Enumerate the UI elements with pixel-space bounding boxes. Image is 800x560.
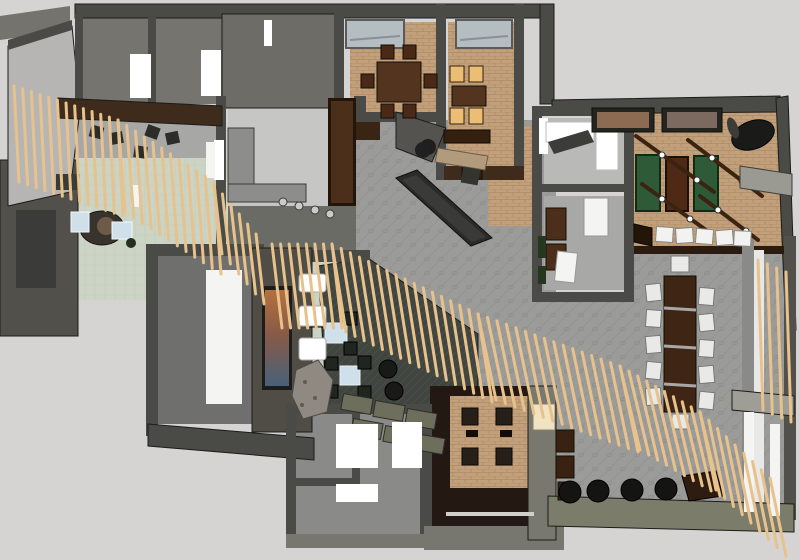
restroom-bottom-band xyxy=(286,534,434,548)
dining1-chair xyxy=(381,45,394,59)
alcove-chair xyxy=(496,408,512,425)
communal-chair xyxy=(698,391,715,409)
bar-stool xyxy=(326,210,334,218)
office-wall-bottom xyxy=(532,292,634,302)
white-bench xyxy=(299,338,326,360)
ottoman xyxy=(385,382,403,400)
beam-light xyxy=(715,207,721,213)
game-bar-stool xyxy=(695,228,713,244)
blank-room xyxy=(222,14,338,108)
lounge-chair xyxy=(325,357,338,370)
dining2-amber-chair xyxy=(469,108,483,124)
dining2-amber-chair xyxy=(450,108,464,124)
dining2-sideboard xyxy=(444,130,490,143)
game-bar-end xyxy=(634,224,652,246)
skylight-1 xyxy=(346,20,404,48)
shelf-box xyxy=(556,430,574,452)
dining2-amber-chair xyxy=(469,66,483,82)
closet-wall-left xyxy=(75,14,83,106)
shelf-box xyxy=(556,456,574,478)
beam-light xyxy=(659,152,665,158)
stone-speckle xyxy=(313,396,317,400)
reception-plant xyxy=(126,238,136,248)
pantry-wall-right xyxy=(624,106,634,302)
table-metal-band xyxy=(664,308,696,310)
white-post xyxy=(206,142,215,178)
dining2-table xyxy=(452,86,486,106)
communal-chair xyxy=(645,361,662,379)
slat-anchor-block xyxy=(56,174,80,190)
pool-table-green xyxy=(636,155,660,211)
dark-chair xyxy=(461,167,481,186)
reception-table xyxy=(112,222,132,239)
game-bar-stool xyxy=(675,227,693,243)
communal-chair xyxy=(645,283,662,301)
office-white-chair xyxy=(554,251,577,283)
service-bar-top xyxy=(331,101,353,203)
ottoman xyxy=(655,478,677,500)
office-plant xyxy=(538,236,546,258)
alcove-table xyxy=(466,430,478,437)
alcove-chair xyxy=(496,448,512,465)
table-metal-band xyxy=(664,346,696,348)
restroom-wall-left xyxy=(286,404,296,546)
round-table xyxy=(415,142,431,158)
closet-door-1 xyxy=(130,54,151,98)
stone-speckle xyxy=(303,380,307,384)
lounge-chair xyxy=(344,342,357,355)
floorplan-render xyxy=(0,0,800,560)
picture-canvas xyxy=(667,112,717,128)
beam-light xyxy=(694,177,700,183)
lounge-chair xyxy=(358,356,371,369)
restroom-fixture xyxy=(336,484,378,502)
office-desk xyxy=(546,208,566,240)
picture-canvas xyxy=(597,112,649,128)
restroom-fixture xyxy=(392,422,422,468)
beam-light xyxy=(659,196,665,202)
corridor-wall-left xyxy=(146,244,158,436)
ottoman xyxy=(559,481,581,503)
table-metal-band xyxy=(664,384,696,386)
ottoman xyxy=(621,479,643,501)
alcove-chair xyxy=(462,408,478,425)
ottoman xyxy=(379,360,397,378)
communal-chair xyxy=(698,365,714,383)
office-plant xyxy=(538,266,546,284)
dining1-chair xyxy=(381,104,394,118)
skylight-2 xyxy=(456,20,512,48)
beam-light xyxy=(709,155,715,161)
floorplan-canvas xyxy=(0,0,800,560)
hall-wood-piece xyxy=(356,122,380,140)
bar-stool xyxy=(279,198,287,206)
alcove-chair xyxy=(462,448,478,465)
pantry-office-divider xyxy=(532,184,634,192)
dining2-wall-right xyxy=(514,4,524,178)
corridor-wall-top xyxy=(146,244,264,256)
communal-chair xyxy=(698,313,715,331)
dining1-chair xyxy=(361,74,374,88)
dining1-chair xyxy=(403,104,416,118)
dining1-table xyxy=(377,62,421,102)
alcove-table xyxy=(500,430,512,437)
dining1-chair xyxy=(403,45,416,59)
service-counter-bottom xyxy=(228,184,306,202)
communal-chair xyxy=(645,335,661,353)
beam-light xyxy=(687,216,693,222)
bar-stool xyxy=(295,202,303,210)
communal-chair xyxy=(698,287,714,305)
game-bar-stool xyxy=(655,226,673,242)
communal-chair-head xyxy=(671,256,689,272)
reception-table xyxy=(71,212,89,232)
blank-room-door xyxy=(264,20,272,46)
communal-table xyxy=(664,276,696,412)
artwork-canvas xyxy=(265,290,289,386)
service-counter-left xyxy=(228,128,254,186)
stone-speckle xyxy=(300,403,304,407)
topwing-right-edge xyxy=(540,4,554,104)
stair-light-strip xyxy=(446,512,534,516)
vestibule-door xyxy=(16,210,56,288)
corridor-lightwell xyxy=(206,270,242,404)
closet-door-2 xyxy=(201,50,221,96)
service-door xyxy=(214,140,224,180)
restroom-fixture xyxy=(336,424,378,468)
communal-chair xyxy=(698,339,714,357)
gameroom-south-divider xyxy=(626,246,792,254)
game-bar-stool xyxy=(734,231,752,247)
dining1-chair xyxy=(424,74,437,88)
ottoman xyxy=(587,480,609,502)
lounge-table xyxy=(340,366,360,385)
communal-chair xyxy=(645,309,661,327)
bar-stool xyxy=(311,206,319,214)
office-white-table xyxy=(584,198,608,236)
pantry-counter-side xyxy=(596,126,618,170)
game-bar-stool xyxy=(715,229,733,245)
dining2-amber-chair xyxy=(450,66,464,82)
